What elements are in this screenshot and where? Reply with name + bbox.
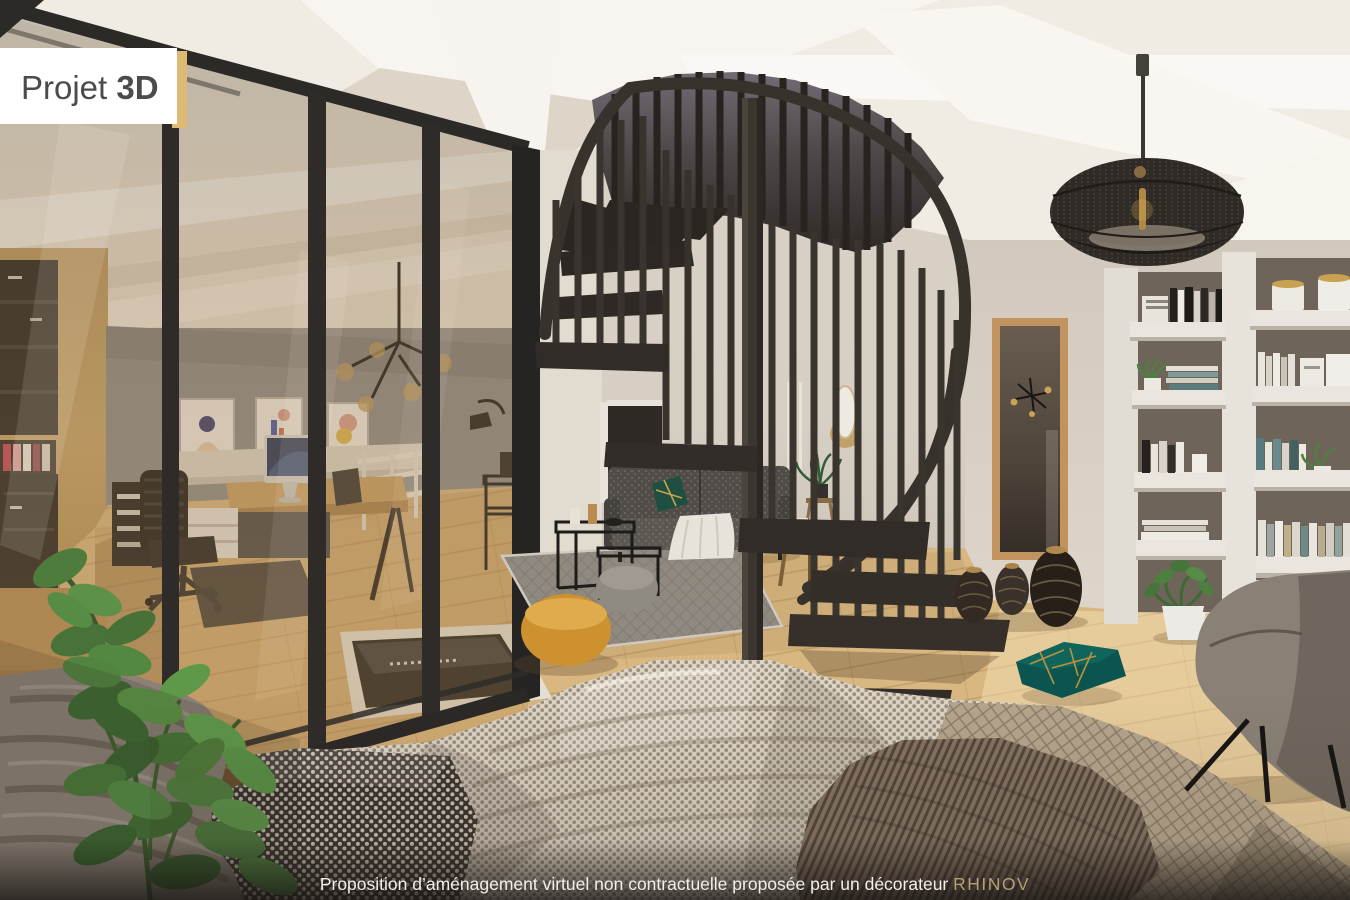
svg-text:Proposition d’aménagement virt: Proposition d’aménagement virtuel non co… — [320, 874, 1030, 894]
svg-text:Projet 3D: Projet 3D — [21, 69, 159, 106]
